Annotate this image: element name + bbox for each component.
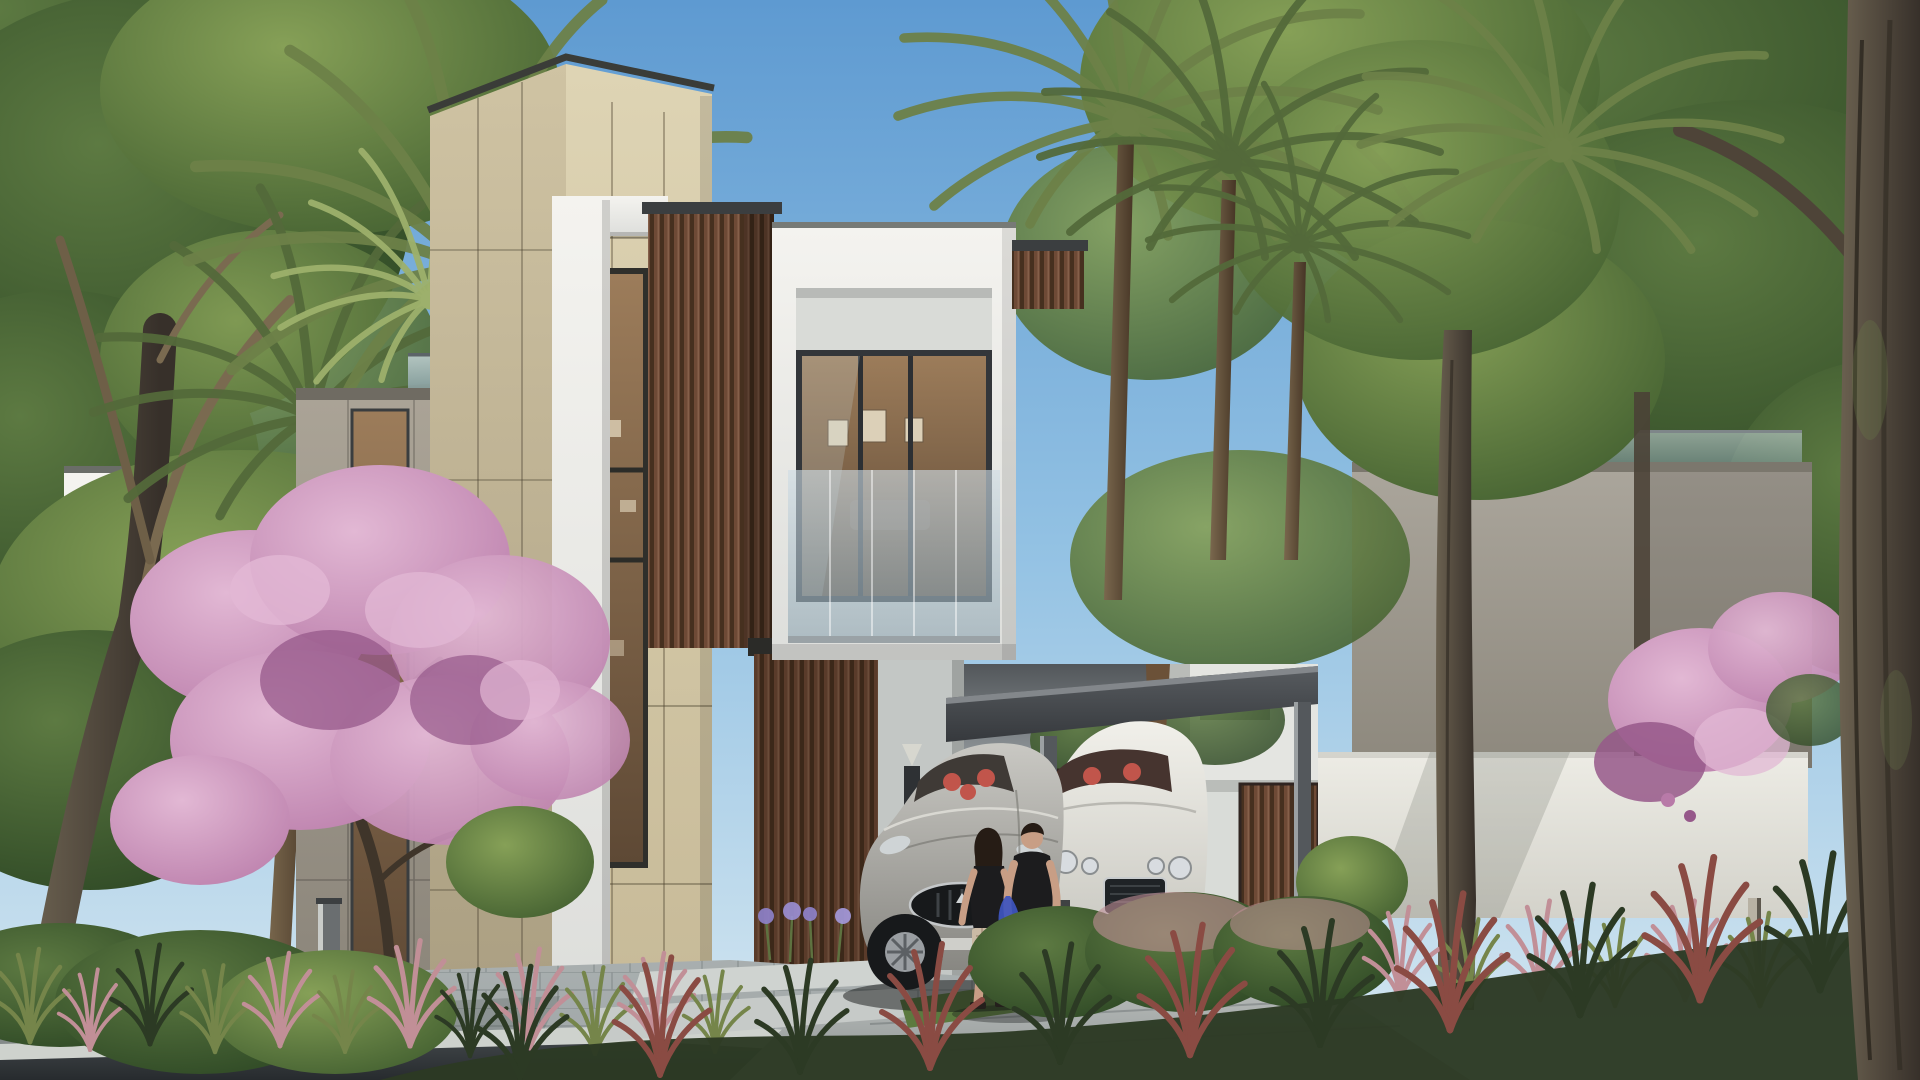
architectural-render — [0, 0, 1920, 1080]
window-recess-band — [796, 288, 992, 350]
tree-trunk-mid — [1436, 330, 1476, 1010]
glass-balustrade — [788, 470, 1000, 643]
tree-trunk-right — [1839, 0, 1920, 1080]
villa-scene-canvas — [0, 0, 1920, 1080]
upper-window-box — [772, 222, 1016, 660]
wood-slat-screen — [642, 202, 782, 648]
slat-parapet-band — [1012, 240, 1088, 309]
round-shrub — [446, 806, 594, 918]
entrance-door — [754, 654, 878, 1012]
